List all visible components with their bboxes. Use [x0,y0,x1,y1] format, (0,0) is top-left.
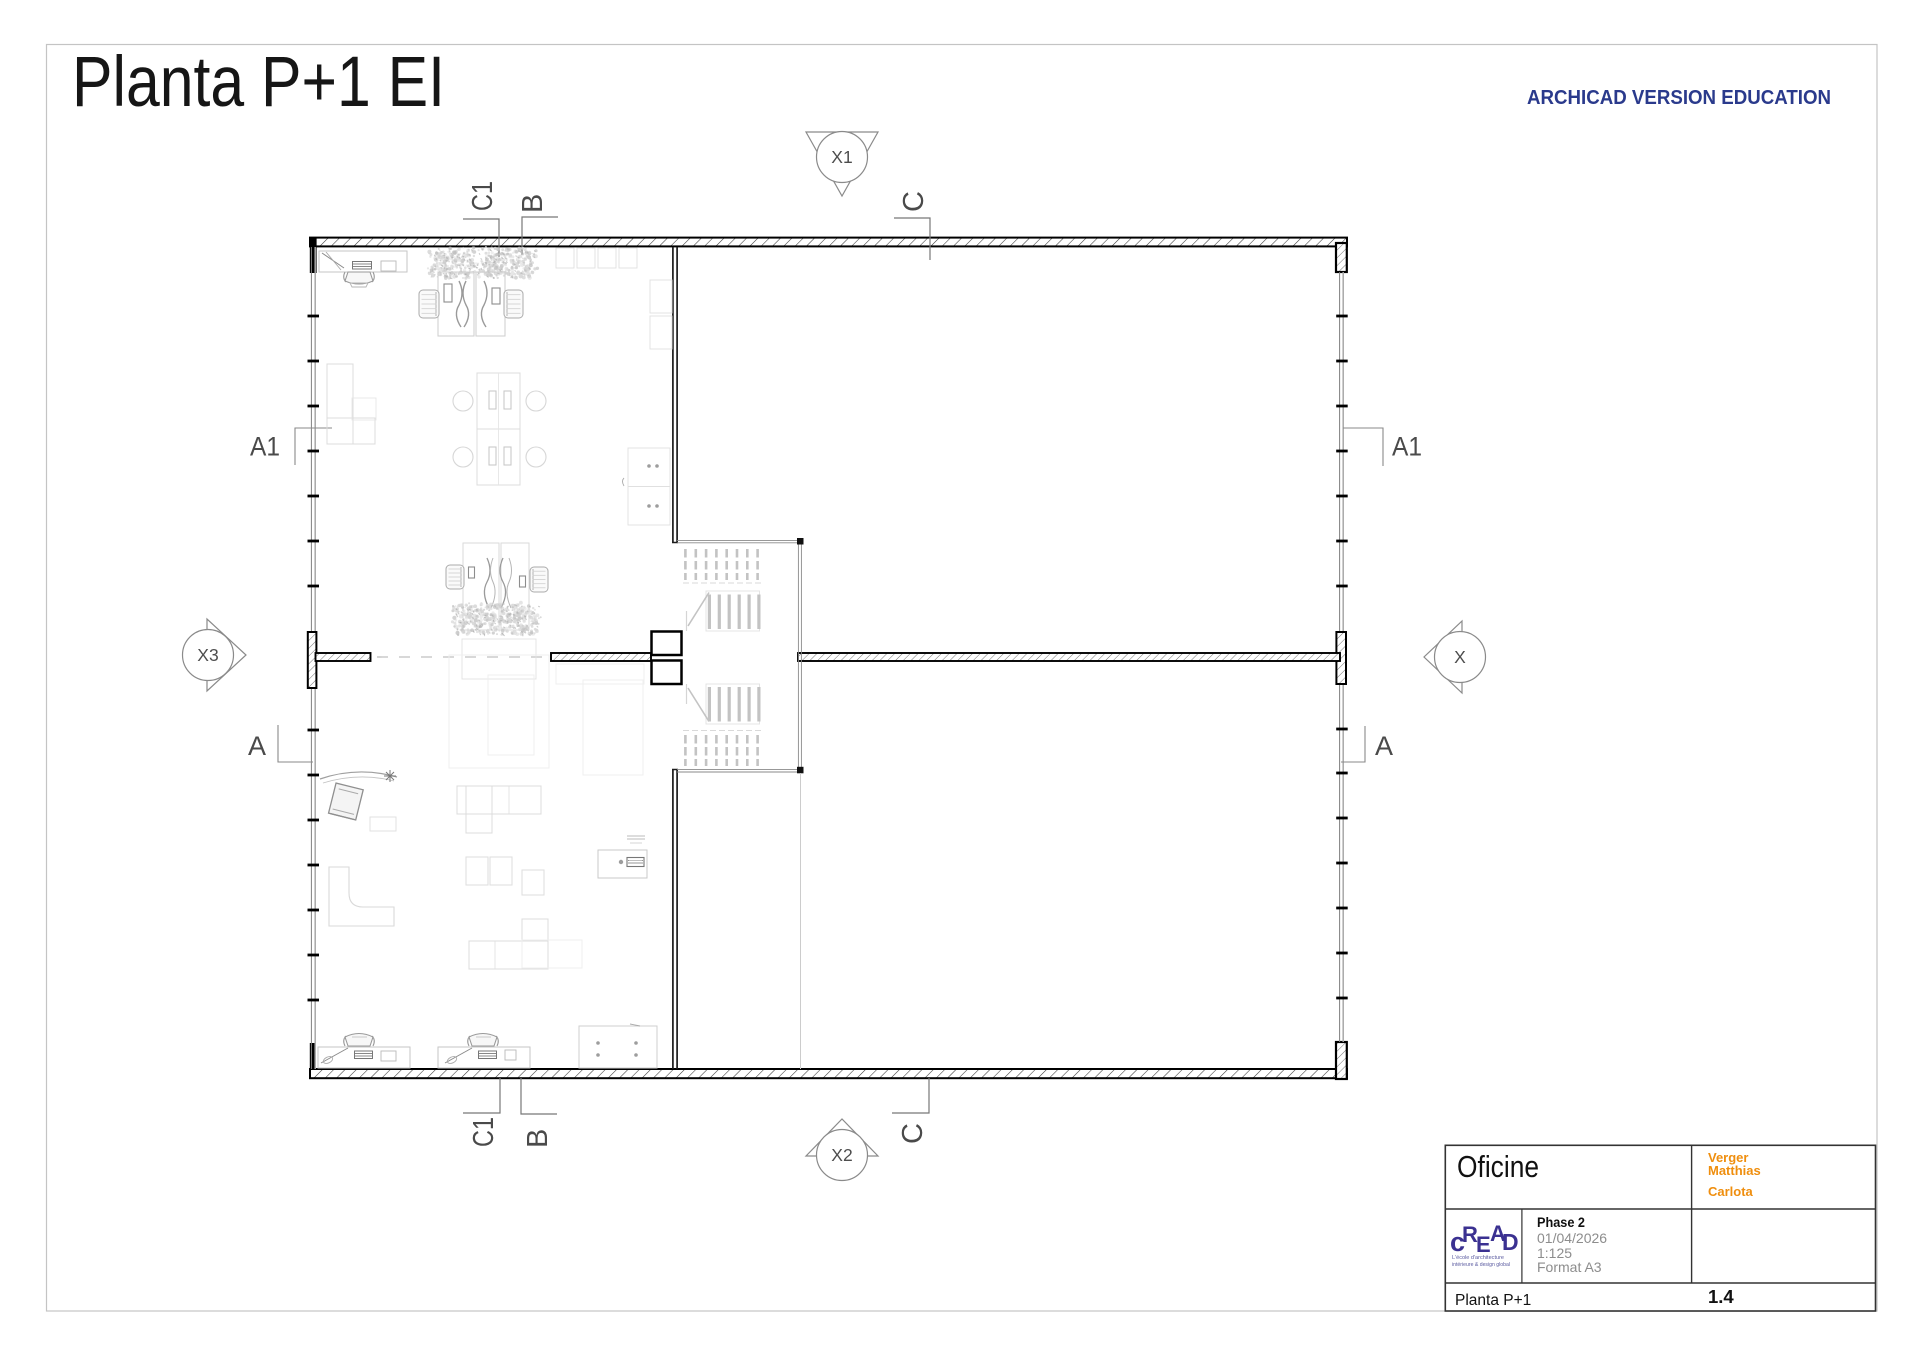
svg-text:ARCHICAD VERSION EDUCATION: ARCHICAD VERSION EDUCATION [1527,86,1831,109]
svg-text:A1: A1 [250,432,280,462]
svg-text:Matthias: Matthias [1708,1163,1761,1178]
svg-text:A: A [248,731,266,761]
svg-text:X3: X3 [197,645,218,665]
svg-text:A: A [1375,731,1393,761]
svg-text:C: C [898,191,930,212]
svg-text:intérieure & design global: intérieure & design global [1452,1262,1510,1268]
svg-text:X1: X1 [831,147,852,167]
svg-text:Format A3: Format A3 [1537,1259,1602,1275]
svg-text:Planta P+1 EI: Planta P+1 EI [72,43,445,122]
svg-text:D: D [1502,1229,1519,1255]
svg-text:A1: A1 [1392,432,1422,462]
svg-text:L'école d'architecture: L'école d'architecture [1452,1255,1504,1261]
svg-text:B: B [517,194,549,213]
svg-text:C1: C1 [468,1117,500,1147]
svg-text:X: X [1454,647,1466,667]
svg-text:01/04/2026: 01/04/2026 [1537,1230,1607,1246]
svg-text:Planta P+1: Planta P+1 [1455,1292,1531,1309]
svg-text:1.4: 1.4 [1708,1286,1734,1307]
svg-text:B: B [522,1129,554,1148]
svg-text:Oficine: Oficine [1457,1149,1539,1184]
svg-text:C: C [897,1123,929,1144]
svg-text:X2: X2 [831,1145,852,1165]
svg-text:Carlota: Carlota [1708,1184,1754,1199]
svg-text:E: E [1476,1232,1491,1257]
svg-text:Phase 2: Phase 2 [1537,1215,1585,1230]
svg-text:C1: C1 [467,181,499,211]
